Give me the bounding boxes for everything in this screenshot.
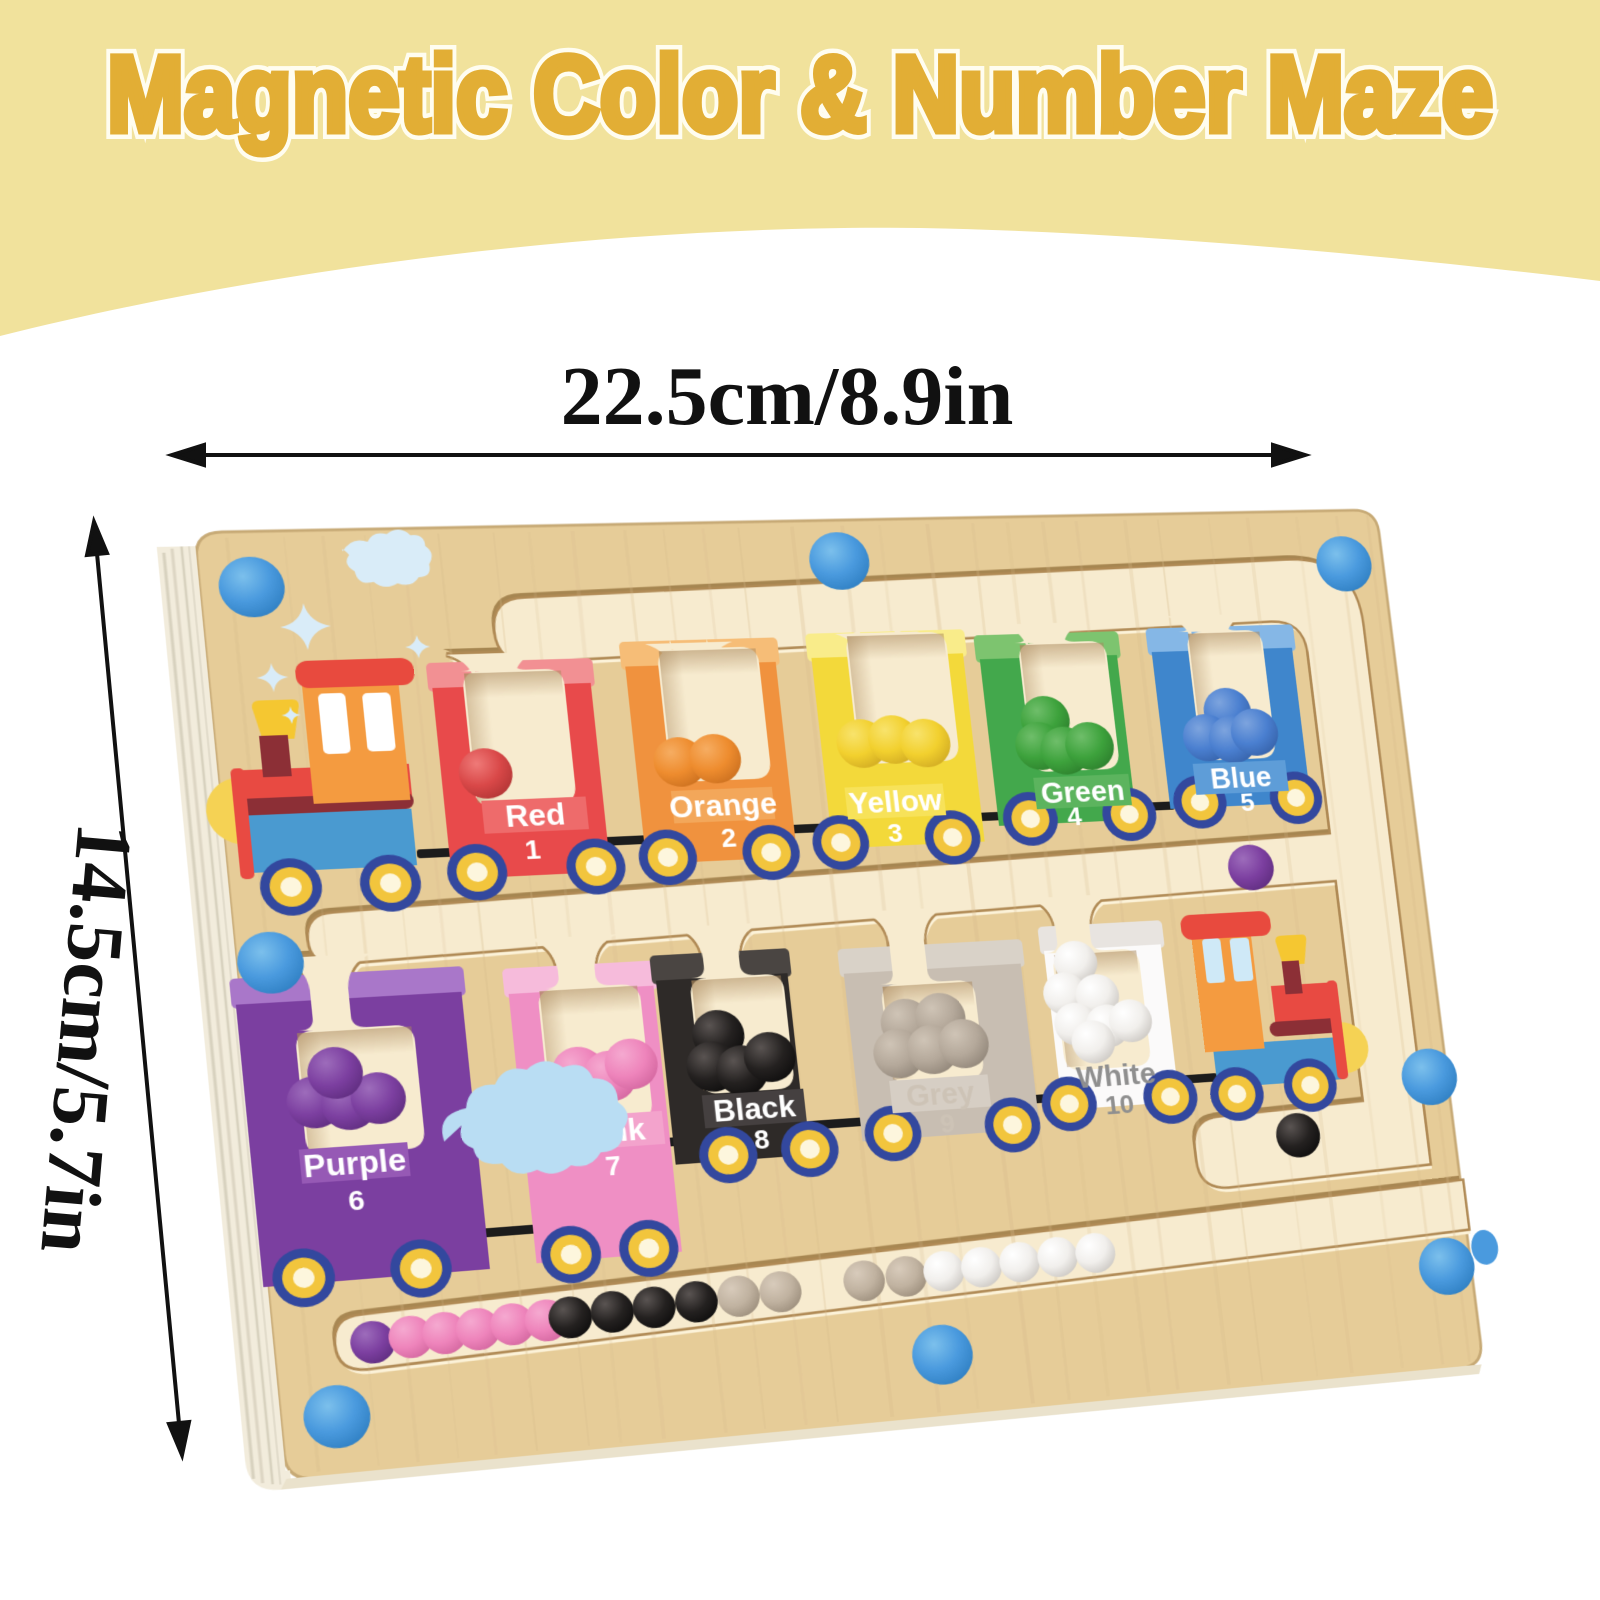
svg-text:White: White xyxy=(1075,1057,1158,1095)
svg-text:Purple: Purple xyxy=(302,1142,408,1184)
svg-text:Red: Red xyxy=(504,797,567,833)
svg-text:1: 1 xyxy=(523,835,542,866)
svg-text:10: 10 xyxy=(1104,1090,1136,1121)
svg-text:22.5cm/8.9in: 22.5cm/8.9in xyxy=(561,350,1014,443)
svg-text:7: 7 xyxy=(604,1151,623,1182)
svg-text:2: 2 xyxy=(720,823,738,853)
svg-text:8: 8 xyxy=(753,1125,771,1156)
svg-text:Orange: Orange xyxy=(668,787,779,825)
svg-text:Black: Black xyxy=(711,1089,797,1128)
svg-text:Grey: Grey xyxy=(904,1075,976,1113)
svg-text:Yellow: Yellow xyxy=(847,784,944,821)
svg-text:Green: Green xyxy=(1039,774,1126,810)
svg-text:14.5cm/5.7in: 14.5cm/5.7in xyxy=(23,820,148,1257)
svg-text:6: 6 xyxy=(347,1185,366,1217)
